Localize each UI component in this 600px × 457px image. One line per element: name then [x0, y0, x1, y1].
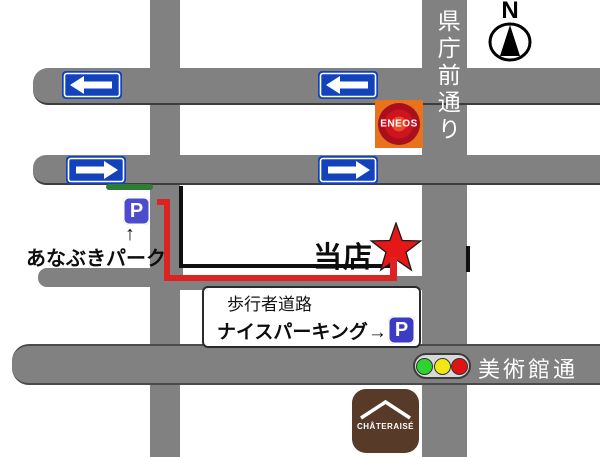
one-way-left-icon: [62, 71, 122, 99]
chateraise-label: CHÂTERAISÉ: [352, 422, 419, 431]
parking-sign-anabuki: P: [123, 197, 150, 225]
parking-info-box: 歩行者道路 ナイスパーキング→ P: [202, 286, 421, 348]
eneos-logo: ENEOS: [375, 100, 423, 148]
access-map: ENEOS 県庁前通り N P ↑ あなぶきパーク 当店 歩行者道路 ナイスパー…: [0, 0, 600, 457]
store-label: 当店: [313, 234, 373, 276]
block-edge-mark: [466, 246, 470, 272]
chateraise-roof-icon: [352, 389, 419, 423]
pedestrian-road-label: 歩行者道路: [227, 290, 312, 315]
parking-sign-nice: P: [388, 316, 415, 344]
compass: N: [487, 0, 533, 62]
one-way-right-icon: [318, 156, 378, 184]
street-name-museum: 美術館通り: [478, 352, 600, 416]
traffic-red-bulb: [451, 358, 468, 375]
parking-sign-letter: P: [395, 319, 408, 342]
chateraise-logo: CHÂTERAISÉ: [352, 389, 419, 453]
traffic-green-bulb: [416, 358, 433, 375]
compass-needle-icon: [487, 22, 533, 62]
one-way-right-icon: [66, 156, 126, 184]
parking-sign-letter: P: [130, 200, 143, 223]
traffic-yellow-bulb: [434, 358, 451, 375]
anabuki-park-label: あなぶきパーク: [26, 242, 166, 271]
route-horizontal-segment: [164, 275, 397, 281]
parking-entrance-mark: [106, 184, 153, 190]
traffic-light-icon: [413, 353, 471, 379]
street-name-kencho: 県庁前通り: [434, 9, 459, 144]
eneos-label: ENEOS: [375, 118, 423, 129]
route-end-segment: [390, 257, 397, 281]
one-way-left-icon: [318, 71, 378, 99]
compass-north-label: N: [487, 0, 533, 22]
nice-parking-label: ナイスパーキング→: [217, 317, 387, 344]
route-vertical-segment: [164, 199, 170, 281]
